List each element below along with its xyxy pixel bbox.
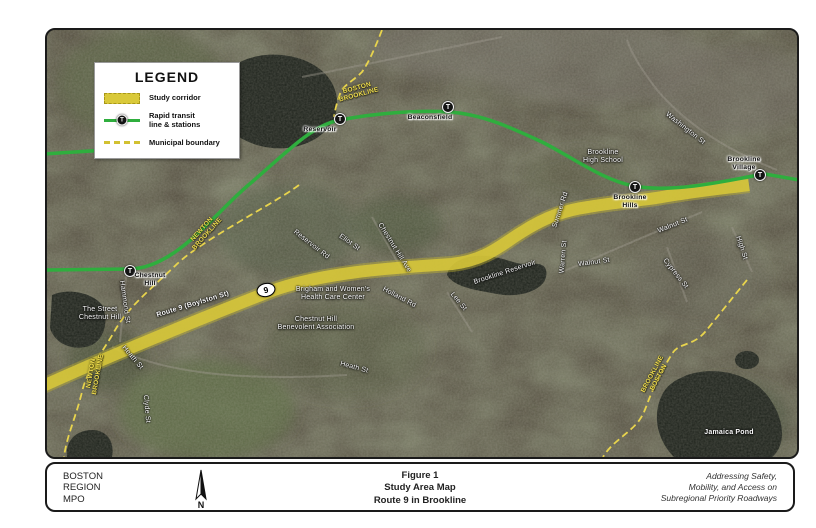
rapid-transit-swatch: T (103, 113, 141, 127)
t-station-icon: T (117, 115, 128, 126)
t-station-icon: T (442, 101, 454, 113)
study-corridor-swatch (103, 91, 141, 105)
legend-item-study-corridor: Study corridor (103, 91, 231, 105)
figure-page: { "colors": { "corridor_yellow": "#d9c93… (0, 0, 816, 528)
legend-item-municipal-boundary: Municipal boundary (103, 136, 231, 150)
legend-title: LEGEND (103, 69, 231, 85)
t-station-icon: T (334, 113, 346, 125)
t-station-icon: T (754, 169, 766, 181)
footer-bar: BOSTON REGION MPO N Figure 1 Study Area … (45, 462, 795, 512)
map-area: LEGEND Study corridor T Rapid transit li… (45, 28, 799, 459)
t-station-icon: T (629, 181, 641, 193)
municipal-boundary-swatch (103, 136, 141, 150)
legend: LEGEND Study corridor T Rapid transit li… (94, 62, 240, 159)
t-station-icon: T (124, 265, 136, 277)
study-tagline: Addressing Safety, Mobility, and Access … (661, 471, 777, 504)
legend-item-rapid-transit: T Rapid transit line & stations (103, 111, 231, 130)
